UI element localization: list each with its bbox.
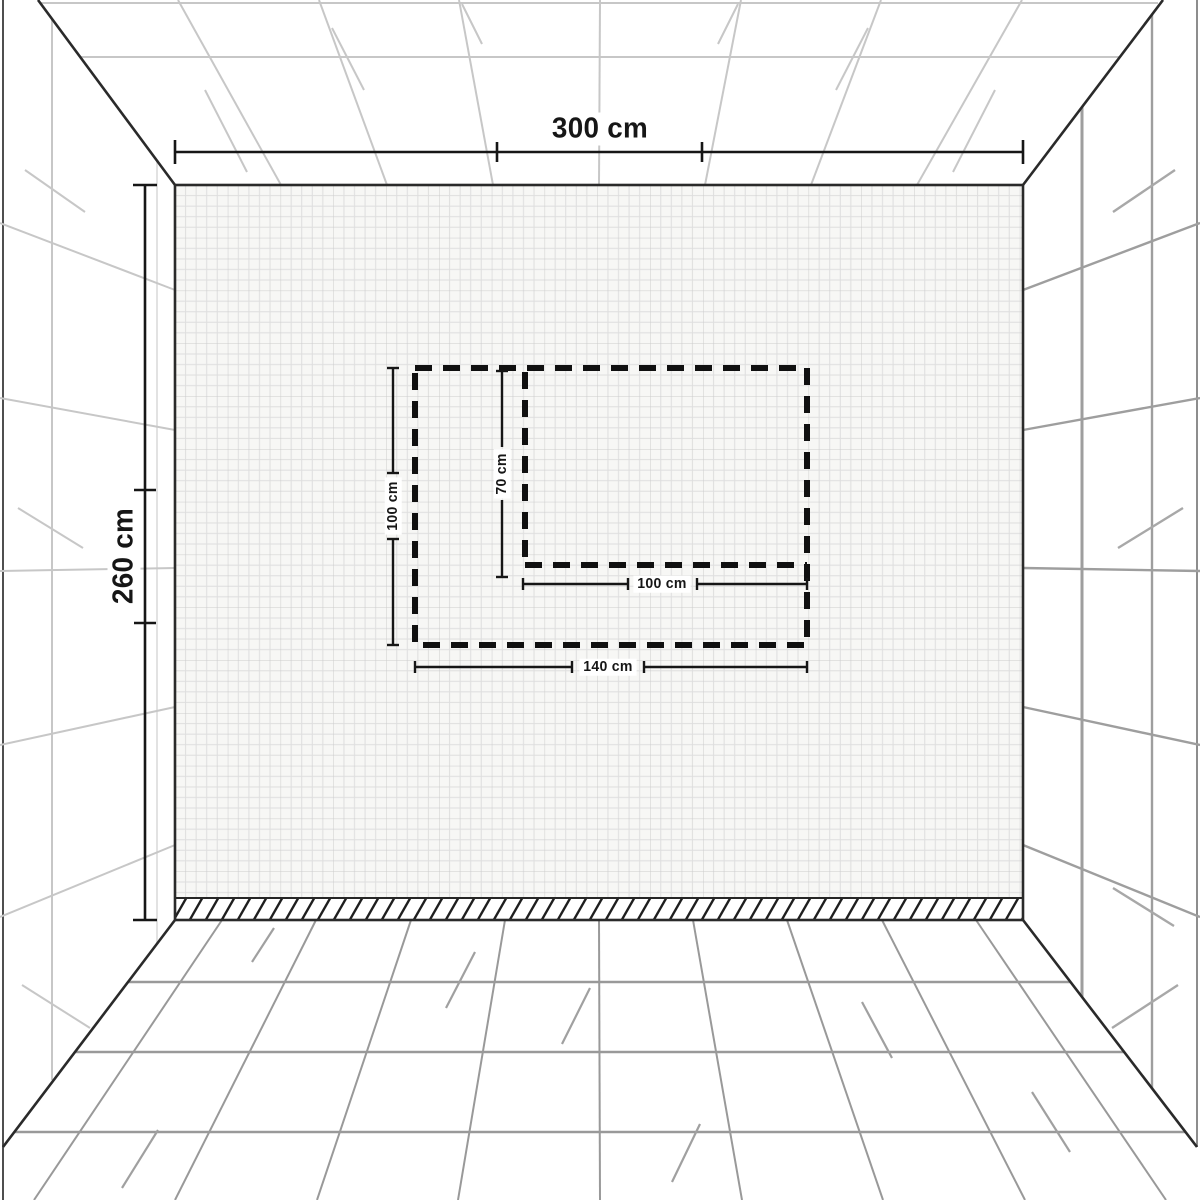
back-wall-grid [175,185,1023,898]
wall-width-label: 300 cm [546,113,654,146]
inner-area-height-label: 70 cm [494,449,511,498]
room-diagram-canvas [0,0,1200,1200]
left-wall-slash-marks [18,170,90,1028]
floor-right-corner-edge [1023,920,1197,1147]
right-wall-slash-marks [1112,170,1183,1028]
inner-area-width-label: 100 cm [633,576,690,593]
room-perspective-diagram: 300 cm 260 cm 100 cm 70 cm 100 cm 140 cm [0,0,1200,1200]
ceiling-right-corner-edge [1023,0,1163,185]
outer-area-width-label: 140 cm [579,659,636,676]
right-wall-tile-lines [1023,0,1200,1147]
outer-area-height-label: 100 cm [385,477,402,534]
skirting-hatch-strip [175,898,1023,920]
floor-left-corner-edge [3,920,175,1147]
ceiling-tile-lines [40,0,1158,185]
wall-height-label: 260 cm [108,502,141,610]
floor-tile-lines [15,920,1185,1200]
left-wall-tile-lines [0,0,175,1200]
ceiling-left-corner-edge [38,0,175,185]
floor-slash-marks [122,928,1070,1188]
